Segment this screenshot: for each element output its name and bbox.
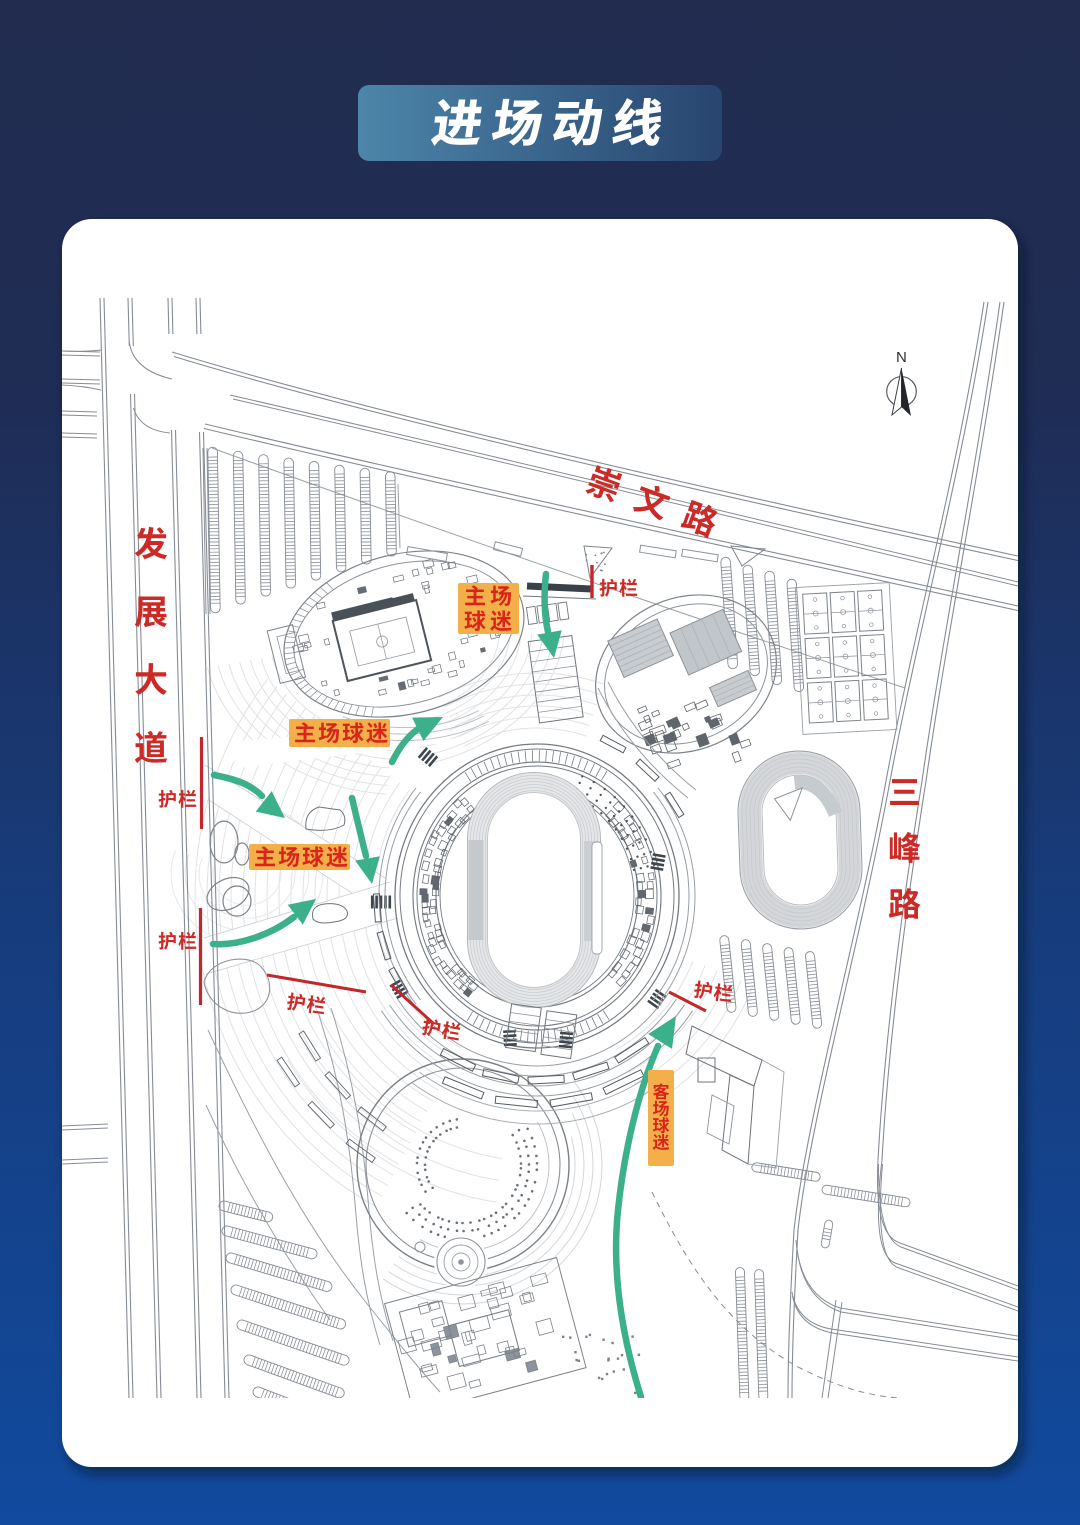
svg-text:N: N: [896, 349, 907, 366]
